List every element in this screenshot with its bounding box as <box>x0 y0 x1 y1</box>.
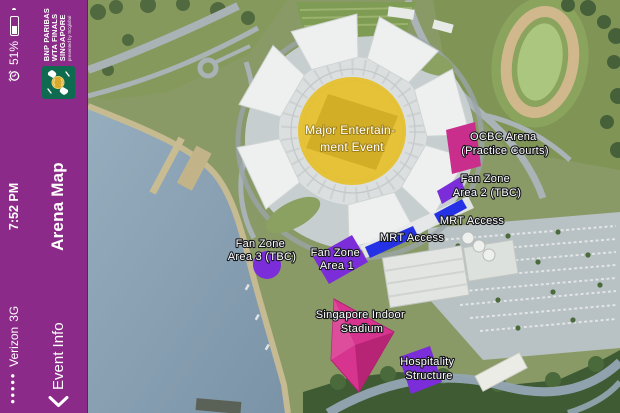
zone-label-line: MRT Access <box>440 215 505 227</box>
zone-label-line: Stadium <box>341 323 383 335</box>
zone-label-mrt-access-lower: MRT Access <box>380 232 445 244</box>
zone-label-line: MRT Access <box>380 232 445 244</box>
logo-line-3: SINGAPORE <box>59 8 67 61</box>
status-bar: ●●●●● Verizon 3G 7:52 PM 51% <box>0 0 28 413</box>
logo-line-4: presented by SCglobal <box>68 8 73 61</box>
zone-label-line: Area 3 (TBC) <box>228 251 296 263</box>
zone-label-line: Structure <box>405 370 452 382</box>
zone-label-line: Hospitality <box>400 356 454 368</box>
nav-bar: Event Info Arena Map BNP PARIBAS WTA FIN… <box>28 0 88 413</box>
zone-label-line: Major Entertain- <box>305 123 395 137</box>
zone-label-line: Fan Zone <box>311 247 360 259</box>
arena-map-image[interactable]: Major Entertain- ment Event OCBC Arena (… <box>88 0 620 413</box>
back-button[interactable]: Event Info <box>48 322 69 408</box>
zone-label-fan-zone-3: Fan Zone Area 3 (TBC) <box>228 238 296 263</box>
clock-label: 7:52 PM <box>7 0 21 413</box>
back-button-label: Event Info <box>50 322 67 390</box>
zone-label-line: Area 1 <box>320 260 354 272</box>
zone-label-line: Fan Zone <box>461 173 510 185</box>
zone-label-line: Area 2 (TBC) <box>453 187 521 199</box>
tennis-logo-icon <box>42 66 75 99</box>
zone-label-line: Singapore Indoor <box>316 309 405 321</box>
zone-label-mrt-access-upper: MRT Access <box>440 215 505 227</box>
battery-icon <box>10 16 19 36</box>
zone-label-line: ment Event <box>320 140 384 154</box>
zone-label-line: Fan Zone <box>236 238 285 250</box>
logo-wordmark: BNP PARIBAS WTA FINALS SINGAPORE present… <box>43 8 73 61</box>
app-screen: ●●●●● Verizon 3G 7:52 PM 51% Event Info <box>0 0 620 413</box>
wta-finals-logo: BNP PARIBAS WTA FINALS SINGAPORE present… <box>42 8 75 99</box>
chevron-left-icon <box>48 396 69 408</box>
zone-label-line: (Practice Courts) <box>461 145 549 157</box>
zone-label-line: OCBC Arena <box>470 131 537 143</box>
